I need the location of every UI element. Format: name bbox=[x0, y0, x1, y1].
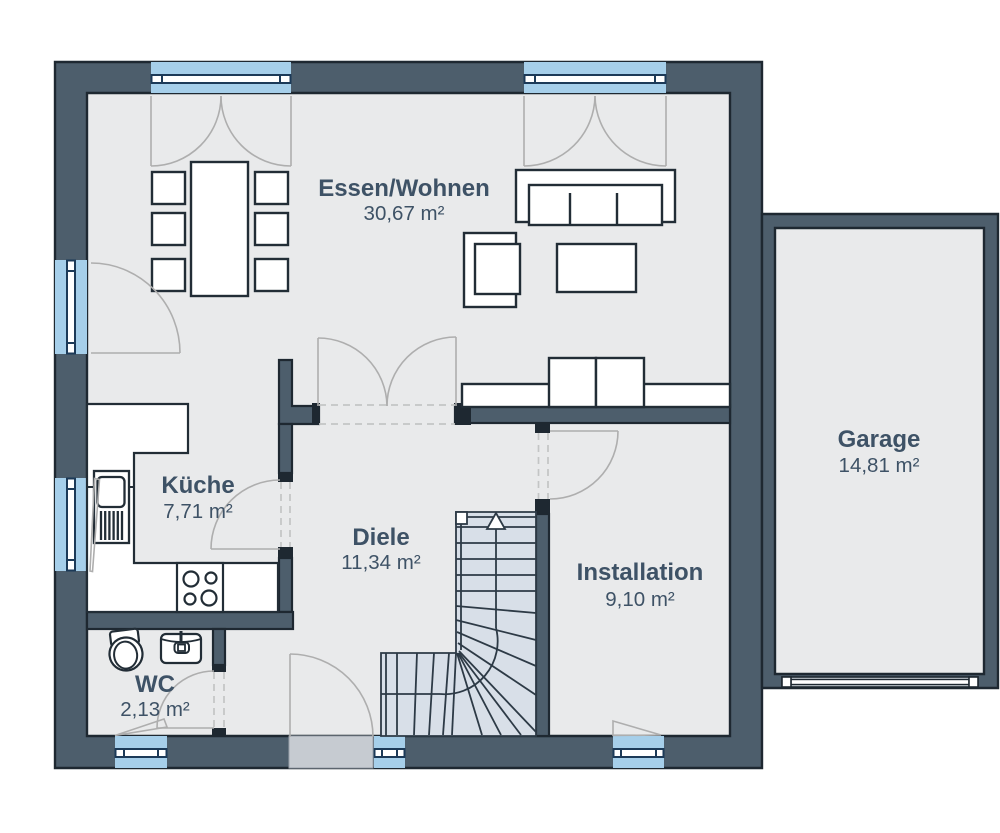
svg-text:30,67 m²: 30,67 m² bbox=[364, 202, 445, 225]
svg-text:2,13 m²: 2,13 m² bbox=[120, 698, 190, 721]
svg-text:7,71 m²: 7,71 m² bbox=[163, 500, 233, 523]
svg-text:Installation: Installation bbox=[577, 559, 704, 586]
svg-text:9,10 m²: 9,10 m² bbox=[605, 588, 675, 611]
svg-text:14,81 m²: 14,81 m² bbox=[839, 454, 920, 477]
svg-text:11,34 m²: 11,34 m² bbox=[341, 551, 421, 574]
svg-text:Diele: Diele bbox=[352, 524, 409, 551]
svg-text:Küche: Küche bbox=[161, 472, 234, 499]
svg-text:Garage: Garage bbox=[838, 426, 921, 453]
svg-text:Essen/Wohnen: Essen/Wohnen bbox=[318, 175, 490, 202]
svg-text:WC: WC bbox=[135, 671, 175, 698]
